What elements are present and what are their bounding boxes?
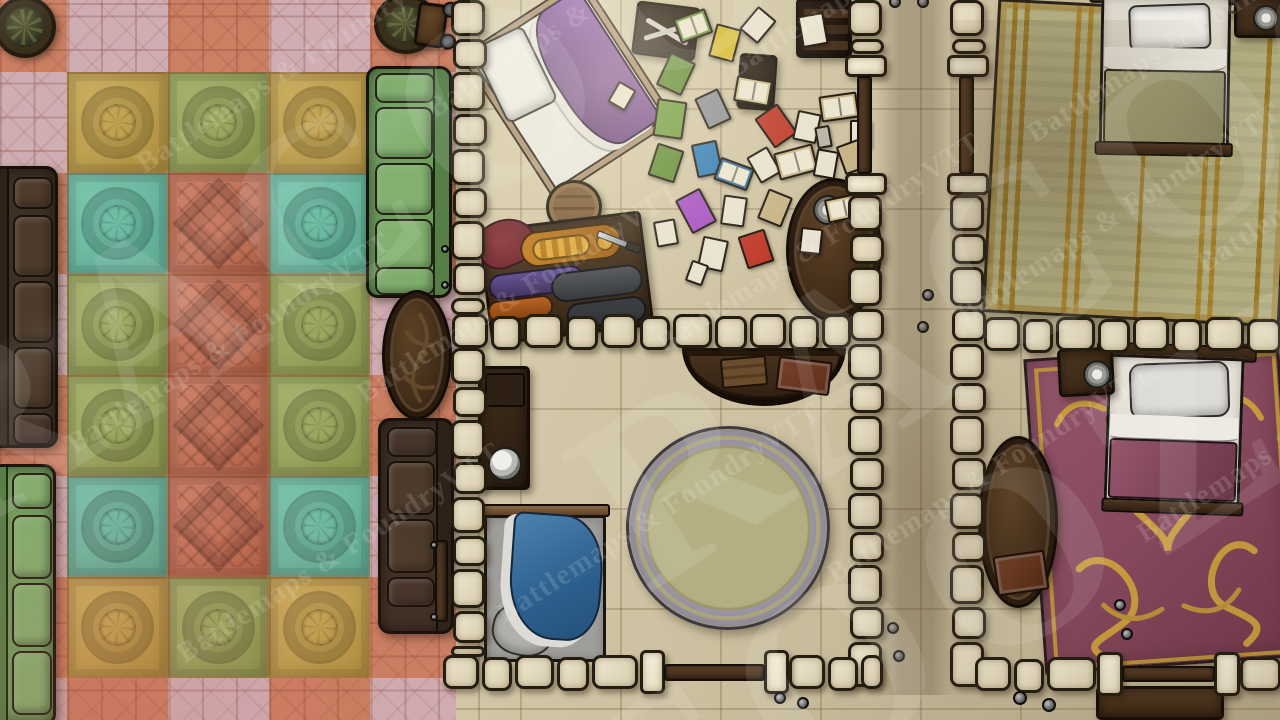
- ornate-floor-tile-gold: [67, 577, 168, 678]
- wall-stone: [451, 497, 485, 533]
- book: [720, 194, 748, 227]
- door-handle-knob: [430, 613, 438, 621]
- wall-stone: [952, 39, 986, 54]
- wall-stone: [453, 387, 487, 417]
- open-book: [818, 91, 859, 122]
- wooden-door: [857, 76, 872, 174]
- door-lintel-stone: [845, 55, 887, 77]
- battle-map-canvas: RACOOZIERACOOZIERACOOZIEBattlemaps & Fou…: [0, 0, 1280, 720]
- wall-stone: [950, 0, 984, 36]
- wall-stone: [1240, 657, 1280, 691]
- door-lintel-stone: [947, 55, 989, 77]
- ornate-floor-tile-red: [168, 476, 269, 577]
- wall-stone: [524, 314, 563, 348]
- door-handle-knob: [430, 541, 438, 549]
- wall-stone: [482, 657, 512, 691]
- wall-stone: [453, 611, 487, 643]
- door-lintel-stone: [1214, 652, 1240, 696]
- wall-stone: [566, 316, 598, 350]
- wooden-door: [435, 540, 448, 622]
- wall-stone: [453, 536, 487, 566]
- wall-stone: [451, 569, 485, 608]
- wall-stone: [443, 655, 479, 689]
- wooden-door: [1122, 666, 1215, 682]
- wall-stone: [850, 39, 884, 54]
